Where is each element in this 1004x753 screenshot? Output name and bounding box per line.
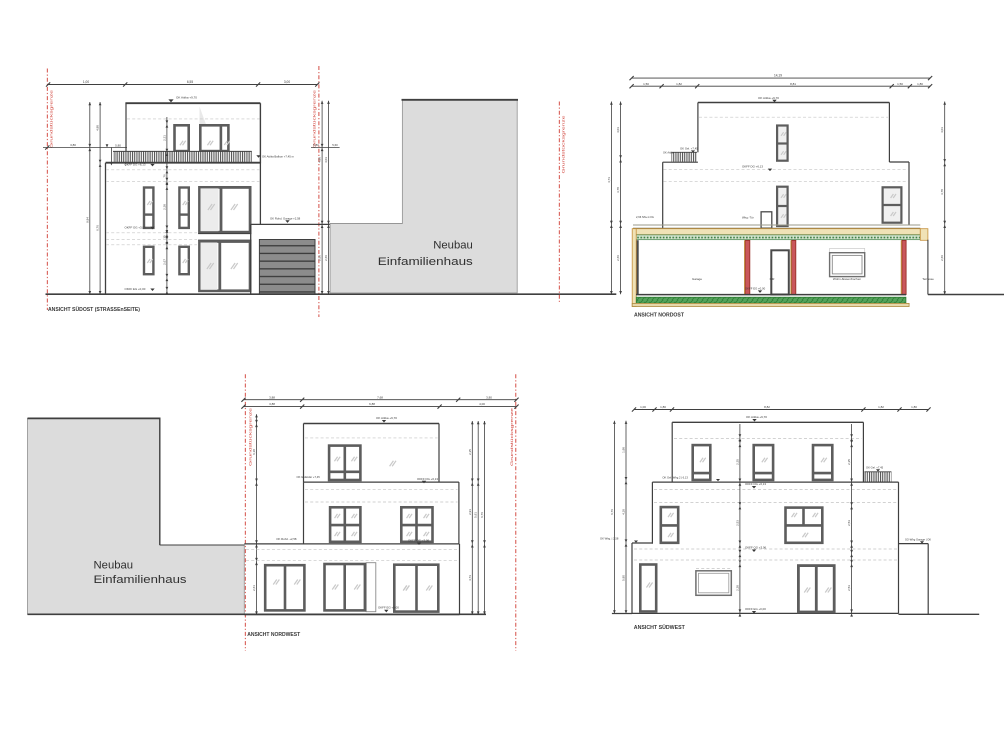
svg-text:3,88: 3,88 (269, 395, 275, 399)
svg-text:OKFF DG +6,13: OKFF DG +6,13 (125, 163, 146, 167)
svg-text:6,76: 6,76 (610, 509, 614, 515)
svg-text:2,66: 2,66 (940, 255, 944, 261)
svg-text:OK Gel. +7,45: OK Gel. +7,45 (866, 466, 884, 470)
svg-text:OK Attika Balkon +7,45 m: OK Attika Balkon +7,45 m (262, 155, 295, 159)
svg-text:3,00: 3,00 (284, 80, 290, 84)
svg-text:Neubau: Neubau (94, 560, 134, 572)
svg-text:2,35: 2,35 (735, 459, 739, 465)
svg-text:1,50: 1,50 (897, 82, 903, 86)
svg-text:OK Attika +9,70: OK Attika +9,70 (376, 416, 397, 420)
svg-text:OK Attika: OK Attika (663, 151, 674, 155)
svg-text:6,18: 6,18 (252, 449, 256, 455)
svg-text:Einfamilienhaus: Einfamilienhaus (94, 574, 187, 586)
svg-text:2,35: 2,35 (847, 459, 851, 465)
svg-text:ANSICHT SÜDOST (STRASSEnSEITE): ANSICHT SÜDOST (STRASSEnSEITE) (48, 306, 140, 313)
svg-text:OKFF DG +6,13: OKFF DG +6,13 (417, 477, 438, 481)
svg-text:4,03: 4,03 (324, 157, 328, 163)
svg-text:ANSICHT NORDOST: ANSICHT NORDOST (634, 313, 685, 319)
svg-text:2,58: 2,58 (318, 255, 322, 261)
svg-text:4,00: 4,00 (479, 402, 485, 406)
svg-text:Grundstücksgrenze: Grundstücksgrenze (561, 116, 566, 174)
svg-text:2,53: 2,53 (735, 520, 739, 526)
svg-text:1,80: 1,80 (911, 405, 917, 409)
svg-text:6,88: 6,88 (369, 402, 375, 406)
svg-text:Wohn-/EssenKochen: Wohn-/EssenKochen (833, 277, 861, 281)
svg-text:Grundstücksgrenze: Grundstücksgrenze (312, 90, 317, 148)
svg-text:5,91: 5,91 (474, 512, 478, 518)
svg-text:1,80: 1,80 (917, 82, 923, 86)
svg-text:4,03: 4,03 (940, 127, 944, 133)
svg-text:6,76: 6,76 (480, 512, 484, 518)
svg-text:3,78: 3,78 (616, 187, 620, 193)
svg-text:4,18: 4,18 (622, 509, 626, 515)
svg-text:2,31: 2,31 (162, 135, 166, 141)
svg-text:SO-Whg Garage | OK: SO-Whg Garage | OK (905, 538, 931, 542)
svg-text:KiR: KiR (770, 277, 776, 281)
svg-text:OKFF EG +0,00: OKFF EG +0,00 (125, 287, 146, 291)
svg-text:3,80: 3,80 (486, 395, 492, 399)
svg-text:2,53: 2,53 (847, 585, 851, 591)
svg-text:35: 35 (162, 235, 166, 239)
svg-text:OKFF EG +0,00: OKFF EG +0,00 (378, 606, 399, 610)
svg-text:ANSICHT NORDWEST: ANSICHT NORDWEST (247, 632, 301, 638)
svg-text:2,61: 2,61 (252, 585, 256, 591)
svg-text:OK Attika +9,70: OK Attika +9,70 (746, 415, 767, 419)
svg-text:3,80: 3,80 (70, 143, 76, 147)
svg-text:Grundstücksgrenze: Grundstücksgrenze (509, 408, 514, 466)
svg-text:2,38: 2,38 (162, 204, 166, 210)
svg-text:OKFF EG +0,00: OKFF EG +0,00 (745, 286, 766, 290)
svg-text:1,00: 1,00 (640, 405, 646, 409)
svg-text:5,60: 5,60 (332, 143, 338, 147)
svg-text:3,78: 3,78 (940, 189, 944, 195)
svg-text:OKFF DG +6,13: OKFF DG +6,13 (745, 482, 766, 486)
svg-text:4,88: 4,88 (318, 157, 322, 163)
svg-text:76: 76 (162, 174, 166, 178)
svg-text:1,80: 1,80 (660, 405, 666, 409)
svg-text:4,73: 4,73 (607, 177, 611, 183)
svg-text:2,66 NN+1.OG: 2,66 NN+1.OG (636, 215, 654, 219)
svg-text:1,98: 1,98 (622, 447, 626, 453)
svg-text:Garage: Garage (692, 277, 702, 281)
svg-text:Grundstücksgrenze: Grundstücksgrenze (248, 408, 253, 466)
svg-text:2,66: 2,66 (324, 255, 328, 261)
svg-text:4,88: 4,88 (96, 125, 100, 131)
svg-text:1,82: 1,82 (878, 405, 884, 409)
svg-text:14,19: 14,19 (774, 74, 782, 78)
svg-text:Grundstücksgrenze: Grundstücksgrenze (49, 90, 54, 148)
svg-text:2,91: 2,91 (468, 509, 472, 515)
svg-text:Whg.-Tür: Whg.-Tür (742, 216, 754, 220)
svg-text:OK Attika +9,70: OK Attika +9,70 (758, 96, 779, 100)
svg-text:2,67: 2,67 (162, 259, 166, 265)
svg-text:5,80: 5,80 (115, 143, 121, 147)
svg-text:Neubau: Neubau (433, 239, 473, 251)
svg-text:5,80: 5,80 (622, 575, 626, 581)
svg-text:OK Whg. | 2,58: OK Whg. | 2,58 (600, 537, 619, 541)
svg-text:6,55: 6,55 (187, 80, 193, 84)
svg-text:OKFF EG +0,00: OKFF EG +0,00 (745, 607, 766, 611)
svg-text:2,66: 2,66 (616, 255, 620, 261)
svg-text:2,35: 2,35 (468, 449, 472, 455)
svg-text:7,68: 7,68 (377, 395, 383, 399)
svg-text:5,80: 5,80 (313, 143, 319, 147)
svg-text:Einfamilienhaus: Einfamilienhaus (378, 256, 473, 268)
svg-text:4,73: 4,73 (468, 575, 472, 581)
svg-text:4,03: 4,03 (616, 127, 620, 133)
svg-text:1,50: 1,50 (643, 82, 649, 86)
svg-text:OK Rohd. +2,58: OK Rohd. +2,58 (276, 537, 297, 541)
svg-text:OK Attika +9,70: OK Attika +9,70 (176, 96, 197, 100)
svg-text:OK Geländer +7,45: OK Geländer +7,45 (297, 475, 321, 479)
svg-text:3,88: 3,88 (269, 402, 275, 406)
svg-text:9,84: 9,84 (85, 217, 89, 223)
svg-text:OKFF OG +3,06: OKFF OG +3,06 (125, 226, 147, 230)
svg-text:2,28: 2,28 (735, 585, 739, 591)
svg-text:6,76: 6,76 (96, 225, 100, 231)
svg-text:OK Rohd. Garage +2,58: OK Rohd. Garage +2,58 (270, 216, 301, 220)
svg-text:OKFF DG +6,13: OKFF DG +6,13 (742, 165, 763, 169)
svg-text:8,82: 8,82 (764, 405, 770, 409)
svg-text:OK Gel. +7,45: OK Gel. +7,45 (680, 147, 698, 151)
svg-text:1,82: 1,82 (676, 82, 682, 86)
svg-text:ANSICHT SÜDWEST: ANSICHT SÜDWEST (634, 624, 686, 631)
svg-text:1,00: 1,00 (83, 80, 89, 84)
svg-text:2,53: 2,53 (847, 520, 851, 526)
svg-text:OK Gel. Whg.2 | 6,13: OK Gel. Whg.2 | 6,13 (662, 475, 688, 479)
svg-text:8,81: 8,81 (790, 82, 796, 86)
svg-text:OKFF OG +3,06: OKFF OG +3,06 (408, 539, 430, 543)
